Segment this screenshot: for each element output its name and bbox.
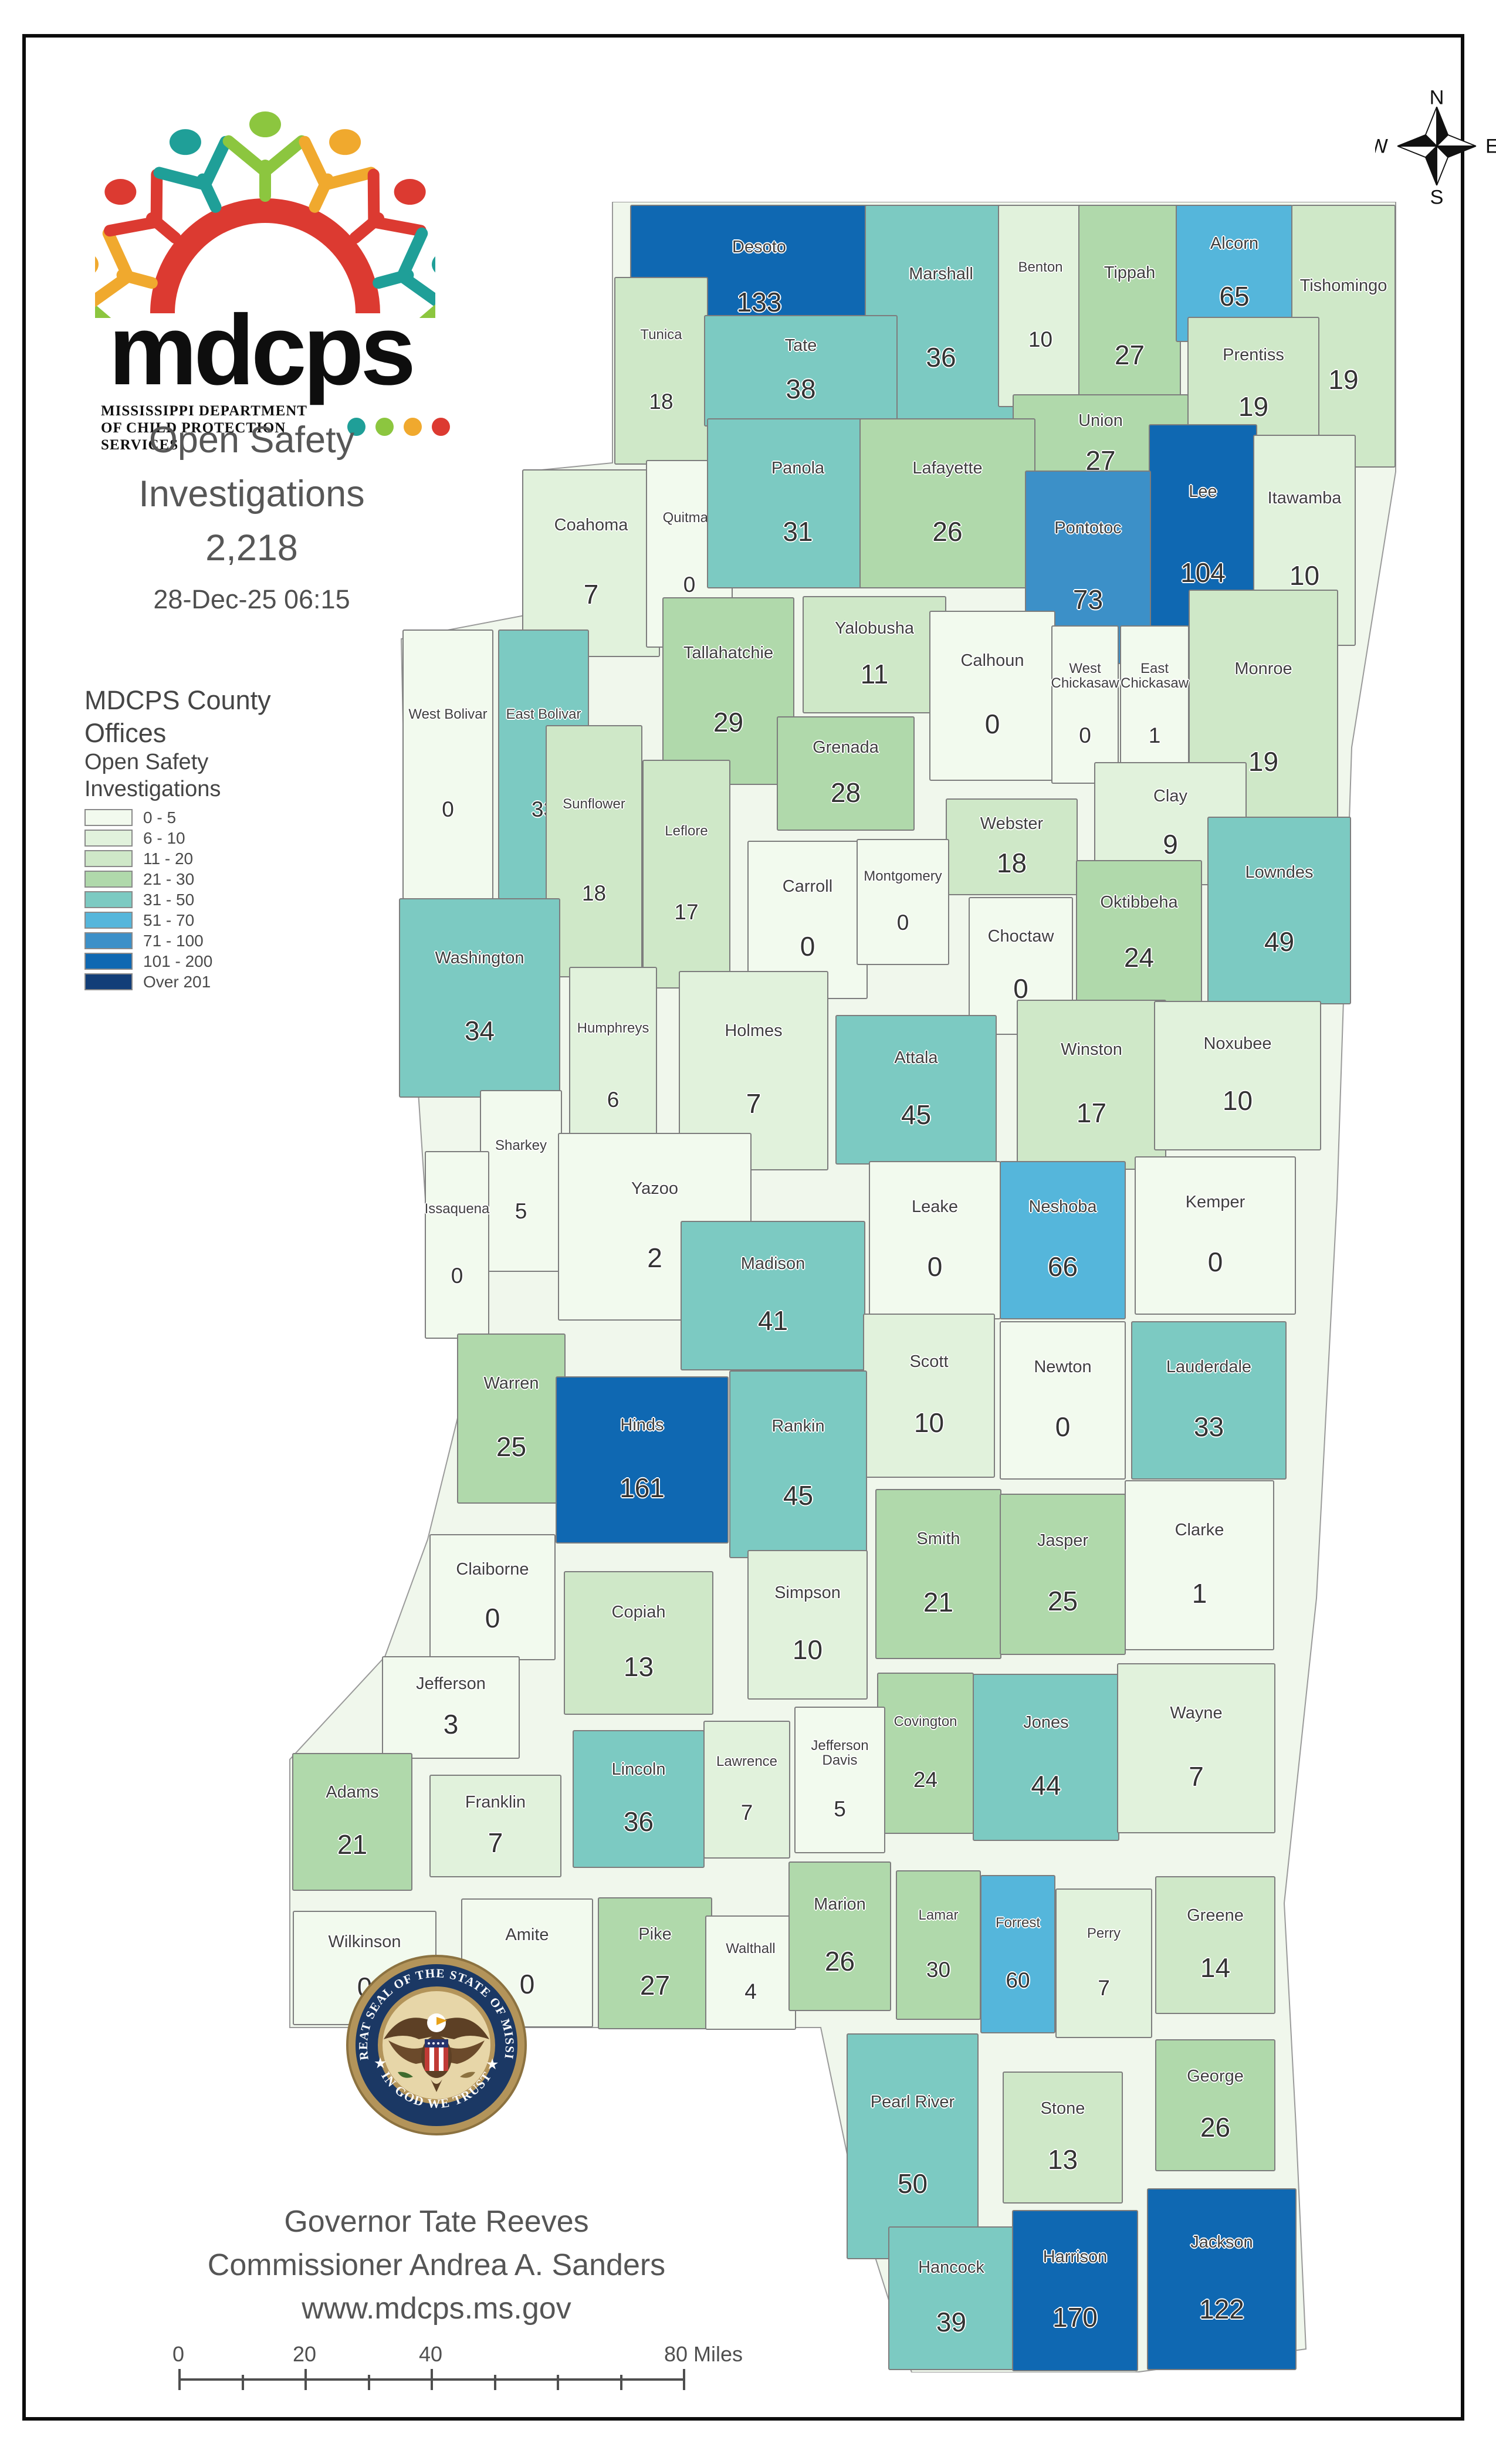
county-value-label: 31 [783,516,813,547]
county-value-label: 7 [1098,1976,1110,2001]
county-clarke: Clarke1 [1125,1480,1274,1650]
county-value-label: 11 [861,658,889,690]
county-value-label: 19 [1248,746,1278,777]
legend: 0 - 56 - 1011 - 2021 - 3031 - 5051 - 707… [84,807,212,992]
county-value-label: 13 [624,1651,654,1683]
county-benton: Benton10 [998,205,1083,407]
county-jefferson-davis: Jefferson Davis5 [794,1707,885,1853]
county-name-label: Holmes [725,1022,782,1040]
legend-row-31-50: 31 - 50 [84,889,212,910]
county-value-label: 50 [898,2168,928,2199]
county-rankin: Rankin45 [729,1370,867,1558]
county-value-label: 170 [1052,2301,1098,2333]
county-forrest: Forrest60 [980,1875,1055,2033]
county-montgomery: Montgomery0 [857,839,949,965]
county-value-label: 1 [1192,1578,1207,1609]
scale-tick [557,2375,559,2390]
county-value-label: 39 [936,2306,966,2338]
county-name-label: Greene [1187,1907,1244,1924]
county-name-label: Yalobusha [835,620,914,637]
county-marion: Marion26 [788,1861,891,2011]
legend-label: 51 - 70 [143,911,194,930]
county-value-label: 26 [932,516,962,547]
county-value-label: 45 [901,1099,931,1131]
county-harrison: Harrison170 [1012,2210,1138,2371]
county-name-label: Tishomingo [1300,277,1387,295]
county-smith: Smith21 [875,1489,1001,1659]
county-kemper: Kemper0 [1135,1156,1296,1315]
county-value-label: 0 [442,797,454,822]
county-value-label: 18 [649,390,673,414]
county-perry: Perry7 [1055,1888,1152,2038]
county-name-label: Lawrence [716,1754,777,1769]
county-value-label: 38 [786,373,815,405]
legend-label: 21 - 30 [143,870,194,889]
county-greene: Greene14 [1155,1876,1275,2014]
county-value-label: 0 [1055,1411,1071,1443]
county-name-label: Walthall [726,1941,775,1956]
county-value-label: 14 [1200,1952,1230,1984]
county-value-label: 161 [620,1472,665,1504]
county-name-label: Franklin [465,1793,526,1811]
county-lowndes: Lowndes49 [1207,817,1351,1004]
county-value-label: 6 [607,1088,620,1112]
county-value-label: 10 [1028,327,1052,352]
county-tallahatchie: Tallahatchie29 [662,597,794,785]
county-pearl-river: Pearl River50 [847,2033,979,2259]
county-attala: Attala45 [835,1015,997,1165]
footer: Governor Tate Reeves Commissioner Andrea… [172,2200,700,2330]
county-name-label: Marion [814,1896,866,1913]
county-name-label: Harrison [1043,2248,1108,2266]
county-west-chickasaw: West Chickasaw0 [1051,625,1119,784]
county-value-label: 0 [897,911,909,935]
county-value-label: 10 [1289,560,1319,591]
county-value-label: 17 [674,900,698,925]
scale-tick [494,2375,496,2390]
compass-north-label: N [1430,86,1444,109]
county-name-label: Calhoun [960,652,1024,669]
county-value-label: 44 [1031,1769,1061,1801]
compass-rose-icon: N S W E [1375,84,1496,208]
county-name-label: Smith [916,1530,960,1548]
county-value-label: 0 [683,573,696,597]
scale-label-20: 20 [293,2342,316,2367]
county-name-label: Neshoba [1028,1198,1096,1216]
legend-row-11-20: 11 - 20 [84,848,212,869]
county-lamar: Lamar30 [896,1870,981,2020]
county-name-label: Prentiss [1223,346,1284,364]
county-lafayette: Lafayette26 [859,418,1035,588]
legend-row-21-30: 21 - 30 [84,869,212,889]
county-name-label: Pearl River [871,2093,955,2111]
county-scott: Scott10 [863,1314,995,1478]
scale-label-80: 80 Miles [664,2342,743,2367]
county-name-label: Desoto [732,238,786,256]
county-name-label: Clay [1153,787,1187,805]
county-value-label: 27 [640,1969,670,2001]
county-name-label: Wilkinson [328,1933,401,1951]
county-name-label: Jackson [1190,2233,1253,2251]
legend-row-6-10: 6 - 10 [84,828,212,848]
county-name-label: Humphreys [577,1021,649,1035]
county-stone: Stone13 [1003,2072,1123,2204]
county-value-label: 21 [923,1586,953,1618]
scale-bar: 0 20 40 80 Miles [178,2342,706,2395]
county-name-label: Forrest [996,1915,1040,1930]
county-value-label: 19 [1238,391,1268,422]
county-name-label: Lee [1189,483,1217,500]
county-value-label: 18 [582,881,606,906]
county-name-label: West Bolivar [408,707,487,722]
county-noxubee: Noxubee10 [1154,1001,1321,1150]
county-washington: Washington34 [399,898,560,1098]
county-name-label: West Chickasaw [1051,661,1119,691]
county-value-label: 10 [1223,1085,1253,1116]
county-name-label: Grenada [813,739,879,756]
county-jefferson: Jefferson3 [382,1656,520,1759]
county-name-label: Jasper [1037,1532,1088,1549]
county-value-label: 133 [737,286,782,318]
county-jones: Jones44 [973,1674,1119,1841]
county-hancock: Hancock39 [888,2226,1014,2370]
county-name-label: Rankin [771,1417,824,1435]
county-winston: Winston17 [1017,1000,1166,1170]
county-value-label: 1 [1149,723,1161,748]
page-frame: mdcps MISSISSIPPI DEPARTMENT OF CHILD PR… [22,34,1464,2421]
county-value-label: 0 [1079,723,1091,748]
county-adams: Adams21 [292,1753,412,1891]
county-value-label: 0 [485,1602,500,1634]
county-value-label: 27 [1115,339,1145,371]
county-name-label: Oktibbeha [1100,893,1177,911]
county-value-label: 0 [800,930,815,962]
county-name-label: Webster [980,815,1043,832]
scale-label-40: 40 [419,2342,442,2367]
county-covington: Covington24 [877,1673,974,1834]
county-value-label: 122 [1199,2293,1244,2325]
county-walthall: Walthall4 [705,1915,796,2030]
county-oktibbeha: Oktibbeha24 [1076,860,1202,1007]
compass-east-label: E [1485,135,1496,157]
county-value-label: 49 [1264,926,1294,957]
county-name-label: Lauderdale [1166,1358,1251,1376]
county-lincoln: Lincoln36 [573,1730,705,1868]
county-value-label: 7 [746,1088,761,1119]
county-name-label: Tate [785,337,817,354]
county-name-label: Leflore [665,824,708,838]
county-name-label: Simpson [774,1584,841,1602]
legend-row-51-70: 51 - 70 [84,910,212,930]
county-neshoba: Neshoba66 [1000,1161,1126,1319]
county-name-label: Tunica [640,327,682,342]
county-value-label: 28 [831,777,861,808]
county-name-label: Kemper [1186,1193,1245,1211]
county-value-label: 33 [1194,1411,1224,1443]
county-name-label: Pontotoc [1054,519,1121,537]
county-value-label: 25 [496,1431,526,1463]
county-value-label: 24 [1124,942,1154,973]
county-lauderdale: Lauderdale33 [1131,1321,1287,1480]
county-tate: Tate38 [704,315,898,427]
legend-row-Over201: Over 201 [84,972,212,992]
county-name-label: Wayne [1170,1704,1222,1722]
county-value-label: 36 [624,1806,654,1837]
scale-tick [683,2369,685,2390]
county-name-label: Sharkey [495,1138,547,1153]
county-value-label: 21 [337,1829,367,1860]
county-east-chickasaw: East Chickasaw1 [1120,625,1189,784]
county-name-label: Clarke [1175,1521,1224,1539]
county-sharkey: Sharkey5 [480,1090,562,1272]
county-tunica: Tunica18 [614,277,708,465]
county-name-label: Madison [741,1255,805,1272]
county-name-label: Sunflower [563,797,625,811]
legend-label: 11 - 20 [143,849,193,868]
county-value-label: 7 [584,578,599,610]
county-name-label: Alcorn [1210,235,1258,252]
legend-row-0-5: 0 - 5 [84,807,212,828]
county-name-label: Noxubee [1203,1035,1271,1052]
county-name-label: Montgomery [864,869,942,884]
county-name-label: Lowndes [1245,864,1313,881]
county-name-label: Lincoln [612,1761,666,1778]
county-name-label: Coahoma [554,516,628,534]
county-name-label: Itawamba [1268,489,1342,507]
county-value-label: 29 [713,706,743,738]
county-value-label: 2 [647,1242,662,1274]
compass-star [1397,107,1476,185]
county-value-label: 0 [985,708,1000,740]
county-value-label: 10 [914,1407,944,1439]
legend-label: 71 - 100 [143,932,204,950]
county-name-label: Claiborne [456,1561,529,1578]
county-leake: Leake0 [869,1161,1001,1319]
county-name-label: Jefferson Davis [798,1738,882,1768]
legend-swatch [84,809,133,826]
county-name-label: Jefferson [416,1675,486,1693]
county-name-label: Copiah [612,1603,666,1621]
county-name-label: Tallahatchie [683,644,773,662]
county-coahoma: Coahoma7 [522,469,660,657]
county-lawrence: Lawrence7 [703,1721,790,1859]
legend-swatch [84,871,133,888]
scale-tick [304,2369,307,2390]
legend-label: Over 201 [143,973,211,991]
county-name-label: Scott [909,1353,948,1370]
county-value-label: 41 [758,1305,788,1336]
county-value-label: 66 [1048,1251,1078,1282]
county-simpson: Simpson10 [747,1550,868,1700]
county-name-label: Monroe [1234,660,1292,678]
scale-tick [178,2369,181,2390]
scale-tick [431,2369,433,2390]
county-value-label: 26 [825,1945,855,1977]
county-value-label: 36 [926,341,956,373]
county-name-label: Choctaw [988,928,1054,945]
county-value-label: 17 [1077,1097,1106,1129]
county-value-label: 3 [444,1708,459,1740]
county-name-label: Attala [894,1049,937,1067]
legend-row-101-200: 101 - 200 [84,951,212,972]
county-madison: Madison41 [681,1221,865,1370]
county-value-label: 9 [1163,828,1178,860]
scale-tick [242,2375,244,2390]
county-name-label: Amite [505,1926,549,1944]
county-copiah: Copiah13 [564,1571,713,1715]
county-issaquena: Issaquena0 [425,1151,489,1339]
county-grenada: Grenada28 [777,716,915,831]
county-value-label: 73 [1073,584,1103,615]
legend-swatch [84,973,133,990]
county-value-label: 4 [744,1979,757,2004]
county-value-label: 5 [515,1199,527,1224]
county-value-label: 19 [1328,364,1358,395]
footer-website: www.mdcps.ms.gov [172,2287,700,2330]
county-name-label: George [1187,2067,1244,2085]
county-value-label: 13 [1048,2144,1078,2175]
county-george: George26 [1155,2039,1275,2171]
legend-swatch [84,830,133,847]
county-name-label: East Chickasaw [1121,661,1189,691]
county-west-bolivar: West Bolivar0 [402,629,493,899]
legend-row-71-100: 71 - 100 [84,930,212,951]
county-name-label: Newton [1034,1358,1091,1376]
county-name-label: Covington [893,1714,957,1729]
county-value-label: 24 [913,1768,937,1792]
county-name-label: Lafayette [912,459,982,477]
county-name-label: Washington [435,949,524,967]
county-name-label: Hancock [918,2259,984,2276]
county-newton: Newton0 [1000,1321,1126,1480]
county-value-label: 10 [793,1634,823,1666]
county-claiborne: Claiborne0 [429,1534,556,1660]
county-value-label: 7 [488,1827,503,1859]
county-value-label: 7 [741,1800,753,1825]
county-name-label: Issaquena [425,1201,490,1216]
county-webster: Webster18 [946,798,1078,895]
county-name-label: Marshall [909,265,973,283]
county-name-label: Union [1078,412,1123,429]
county-name-label: Winston [1061,1041,1122,1058]
county-value-label: 18 [997,847,1027,879]
county-value-label: 0 [451,1264,463,1288]
compass-west-label: W [1375,135,1389,157]
county-warren: Warren25 [457,1333,566,1504]
county-value-label: 26 [1200,2111,1230,2143]
legend-swatch [84,932,133,949]
scale-label-0: 0 [172,2342,184,2367]
county-yalobusha: Yalobusha11 [803,596,946,713]
county-calhoun: Calhoun0 [929,611,1055,781]
legend-label: 31 - 50 [143,891,194,909]
county-value-label: 104 [1180,557,1226,588]
county-value-label: 0 [1208,1246,1223,1278]
county-name-label: Perry [1087,1926,1121,1941]
county-name-label: Hinds [620,1416,664,1434]
scale-tick [620,2375,622,2390]
county-value-label: 25 [1048,1585,1078,1617]
county-value-label: 7 [1189,1761,1204,1792]
county-value-label: 34 [465,1015,495,1047]
county-name-label: Lamar [918,1908,958,1923]
footer-commissioner: Commissioner Andrea A. Sanders [172,2243,700,2287]
county-name-label: Adams [326,1783,378,1801]
legend-swatch [84,912,133,929]
legend-label: 0 - 5 [143,808,176,827]
legend-label: 6 - 10 [143,829,185,848]
county-name-label: Carroll [783,878,832,895]
county-leflore: Leflore17 [642,760,730,989]
county-name-label: Stone [1041,2100,1085,2117]
county-value-label: 5 [834,1797,846,1822]
county-name-label: Benton [1018,260,1062,275]
county-name-label: Panola [771,459,824,477]
county-name-label: Jones [1023,1714,1068,1731]
county-jasper: Jasper25 [1000,1494,1126,1655]
county-value-label: 0 [928,1251,943,1282]
county-franklin: Franklin7 [429,1775,561,1877]
county-name-label: Warren [484,1375,539,1392]
mississippi-state-seal-icon: THE GREAT SEAL OF THE STATE OF MISSISSIP… [343,1951,530,2139]
footer-governor: Governor Tate Reeves [172,2200,700,2243]
legend-label: 101 - 200 [143,952,212,971]
county-hinds: Hinds161 [556,1376,729,1544]
county-value-label: 65 [1219,280,1249,312]
legend-swatch [84,953,133,970]
county-value-label: 30 [926,1958,950,1982]
county-pike: Pike27 [598,1897,712,2029]
county-wayne: Wayne7 [1117,1663,1275,1833]
legend-swatch [84,891,133,908]
scale-tick [368,2375,370,2390]
county-name-label: Leake [912,1198,958,1216]
legend-swatch [84,850,133,867]
county-name-label: East Bolivar [506,707,581,722]
county-name-label: Tippah [1104,264,1156,282]
county-name-label: Yazoo [631,1180,678,1197]
county-value-label: 60 [1006,1968,1030,1993]
county-jackson: Jackson122 [1147,2188,1297,2370]
county-name-label: Pike [638,1925,671,1943]
county-value-label: 45 [783,1480,813,1511]
